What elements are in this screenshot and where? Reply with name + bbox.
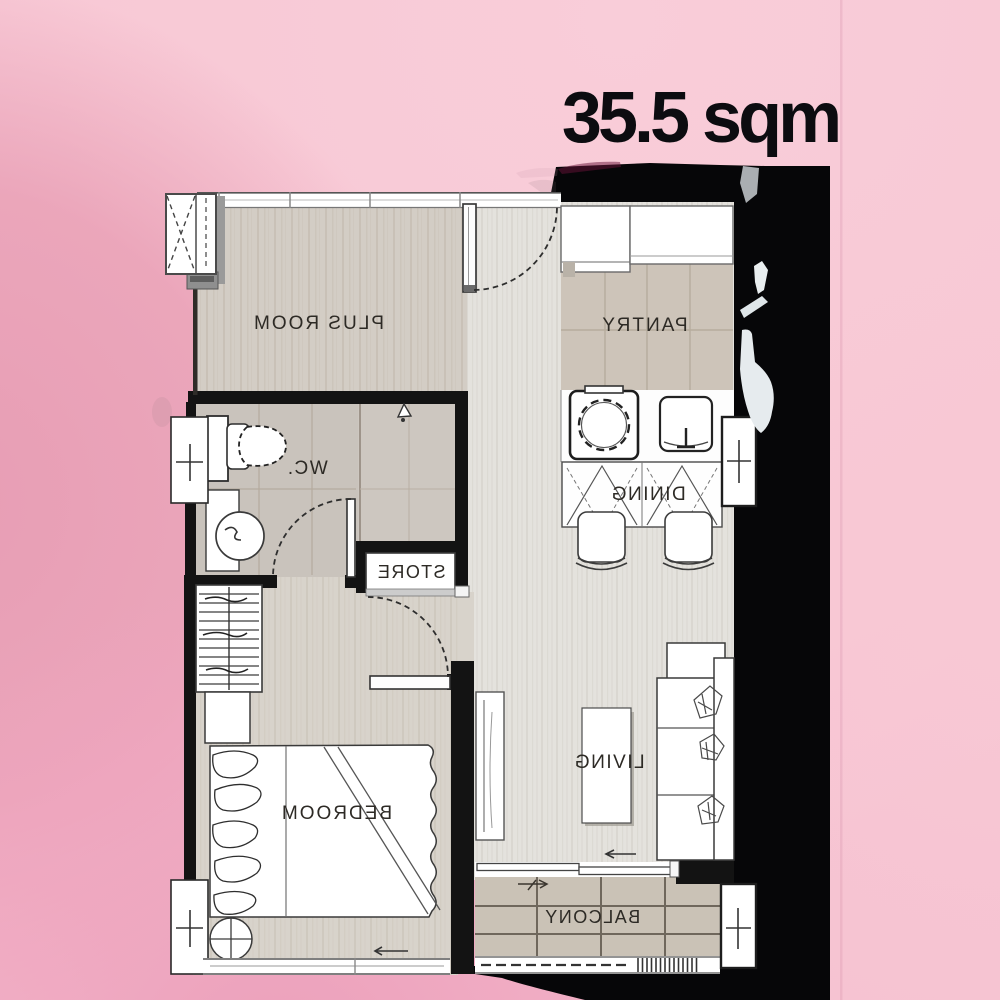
svg-text:WC.: WC. — [286, 458, 327, 479]
svg-text:BEDROOM: BEDROOM — [280, 803, 392, 824]
svg-text:PANTRY: PANTRY — [600, 315, 687, 336]
svg-text:LIVING: LIVING — [573, 752, 644, 773]
svg-text:BALCONY: BALCONY — [544, 907, 641, 927]
svg-text:PLUS ROOM: PLUS ROOM — [252, 313, 384, 334]
svg-text:DINING: DINING — [610, 484, 686, 505]
svg-text:STORE: STORE — [376, 562, 445, 582]
svg-text:35.5 sqm: 35.5 sqm — [562, 78, 838, 158]
